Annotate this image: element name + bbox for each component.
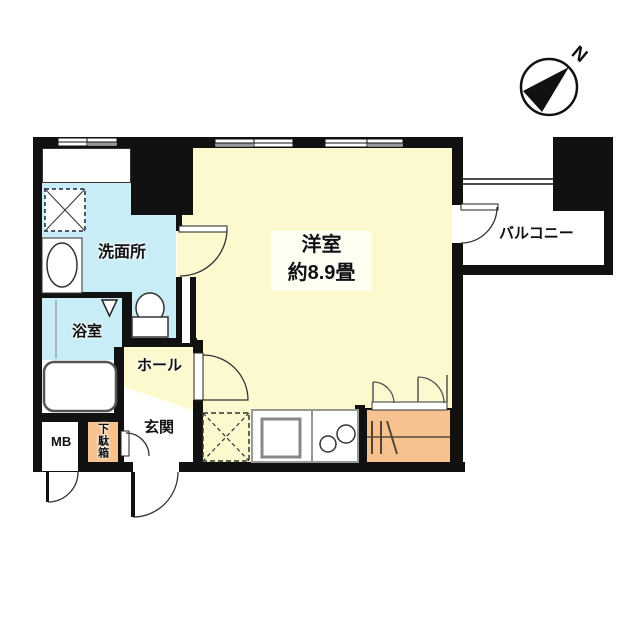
main-room-label: 洋室: [271, 234, 372, 257]
entrance-kitchen-wall: [193, 400, 203, 462]
shoebox-entrance-wall: [118, 422, 124, 462]
meter-box-label: MB: [51, 435, 71, 450]
double-wall-right: [190, 277, 196, 343]
right-wall: [452, 137, 463, 472]
washroom-label: 洗面所: [98, 244, 146, 262]
double-wall-core: [182, 277, 190, 343]
mb-shoebox-wall: [78, 422, 88, 462]
balcony-label: バルコニー: [499, 225, 574, 242]
main-room-size-label: 約8.9畳: [271, 262, 372, 285]
compass-icon: [521, 59, 577, 115]
shoe-box-label: 下駄箱: [96, 423, 109, 463]
floor-plan: 洋室 約8.9畳 洗面所 浴室 ホール 玄関 バルコニー MB 下駄箱 N: [0, 0, 640, 640]
entrance-label: 玄関: [144, 419, 174, 436]
bathroom-top-wall: [42, 292, 123, 298]
balcony-bottom-wall: [458, 265, 613, 275]
washroom-counter: [42, 148, 131, 183]
compass-north-label: N: [567, 42, 592, 68]
balcony-corner-block: [553, 137, 613, 211]
kitchen-closet-wall: [355, 405, 365, 462]
hall-label: ホール: [137, 357, 182, 374]
bathroom-label: 浴室: [72, 323, 102, 340]
bottom-wall: [33, 462, 465, 472]
bathroom-bottom-wall: [33, 413, 124, 422]
bathtub-area: [42, 360, 114, 413]
hall-door-jamb: [193, 340, 203, 353]
washroom-door-jamb: [176, 215, 182, 231]
closet-area: [365, 408, 452, 465]
top-wall: [33, 137, 463, 148]
bathtub-hall-wall: [114, 347, 124, 422]
pipe-column: [131, 145, 193, 215]
balcony-railing: [458, 179, 553, 184]
